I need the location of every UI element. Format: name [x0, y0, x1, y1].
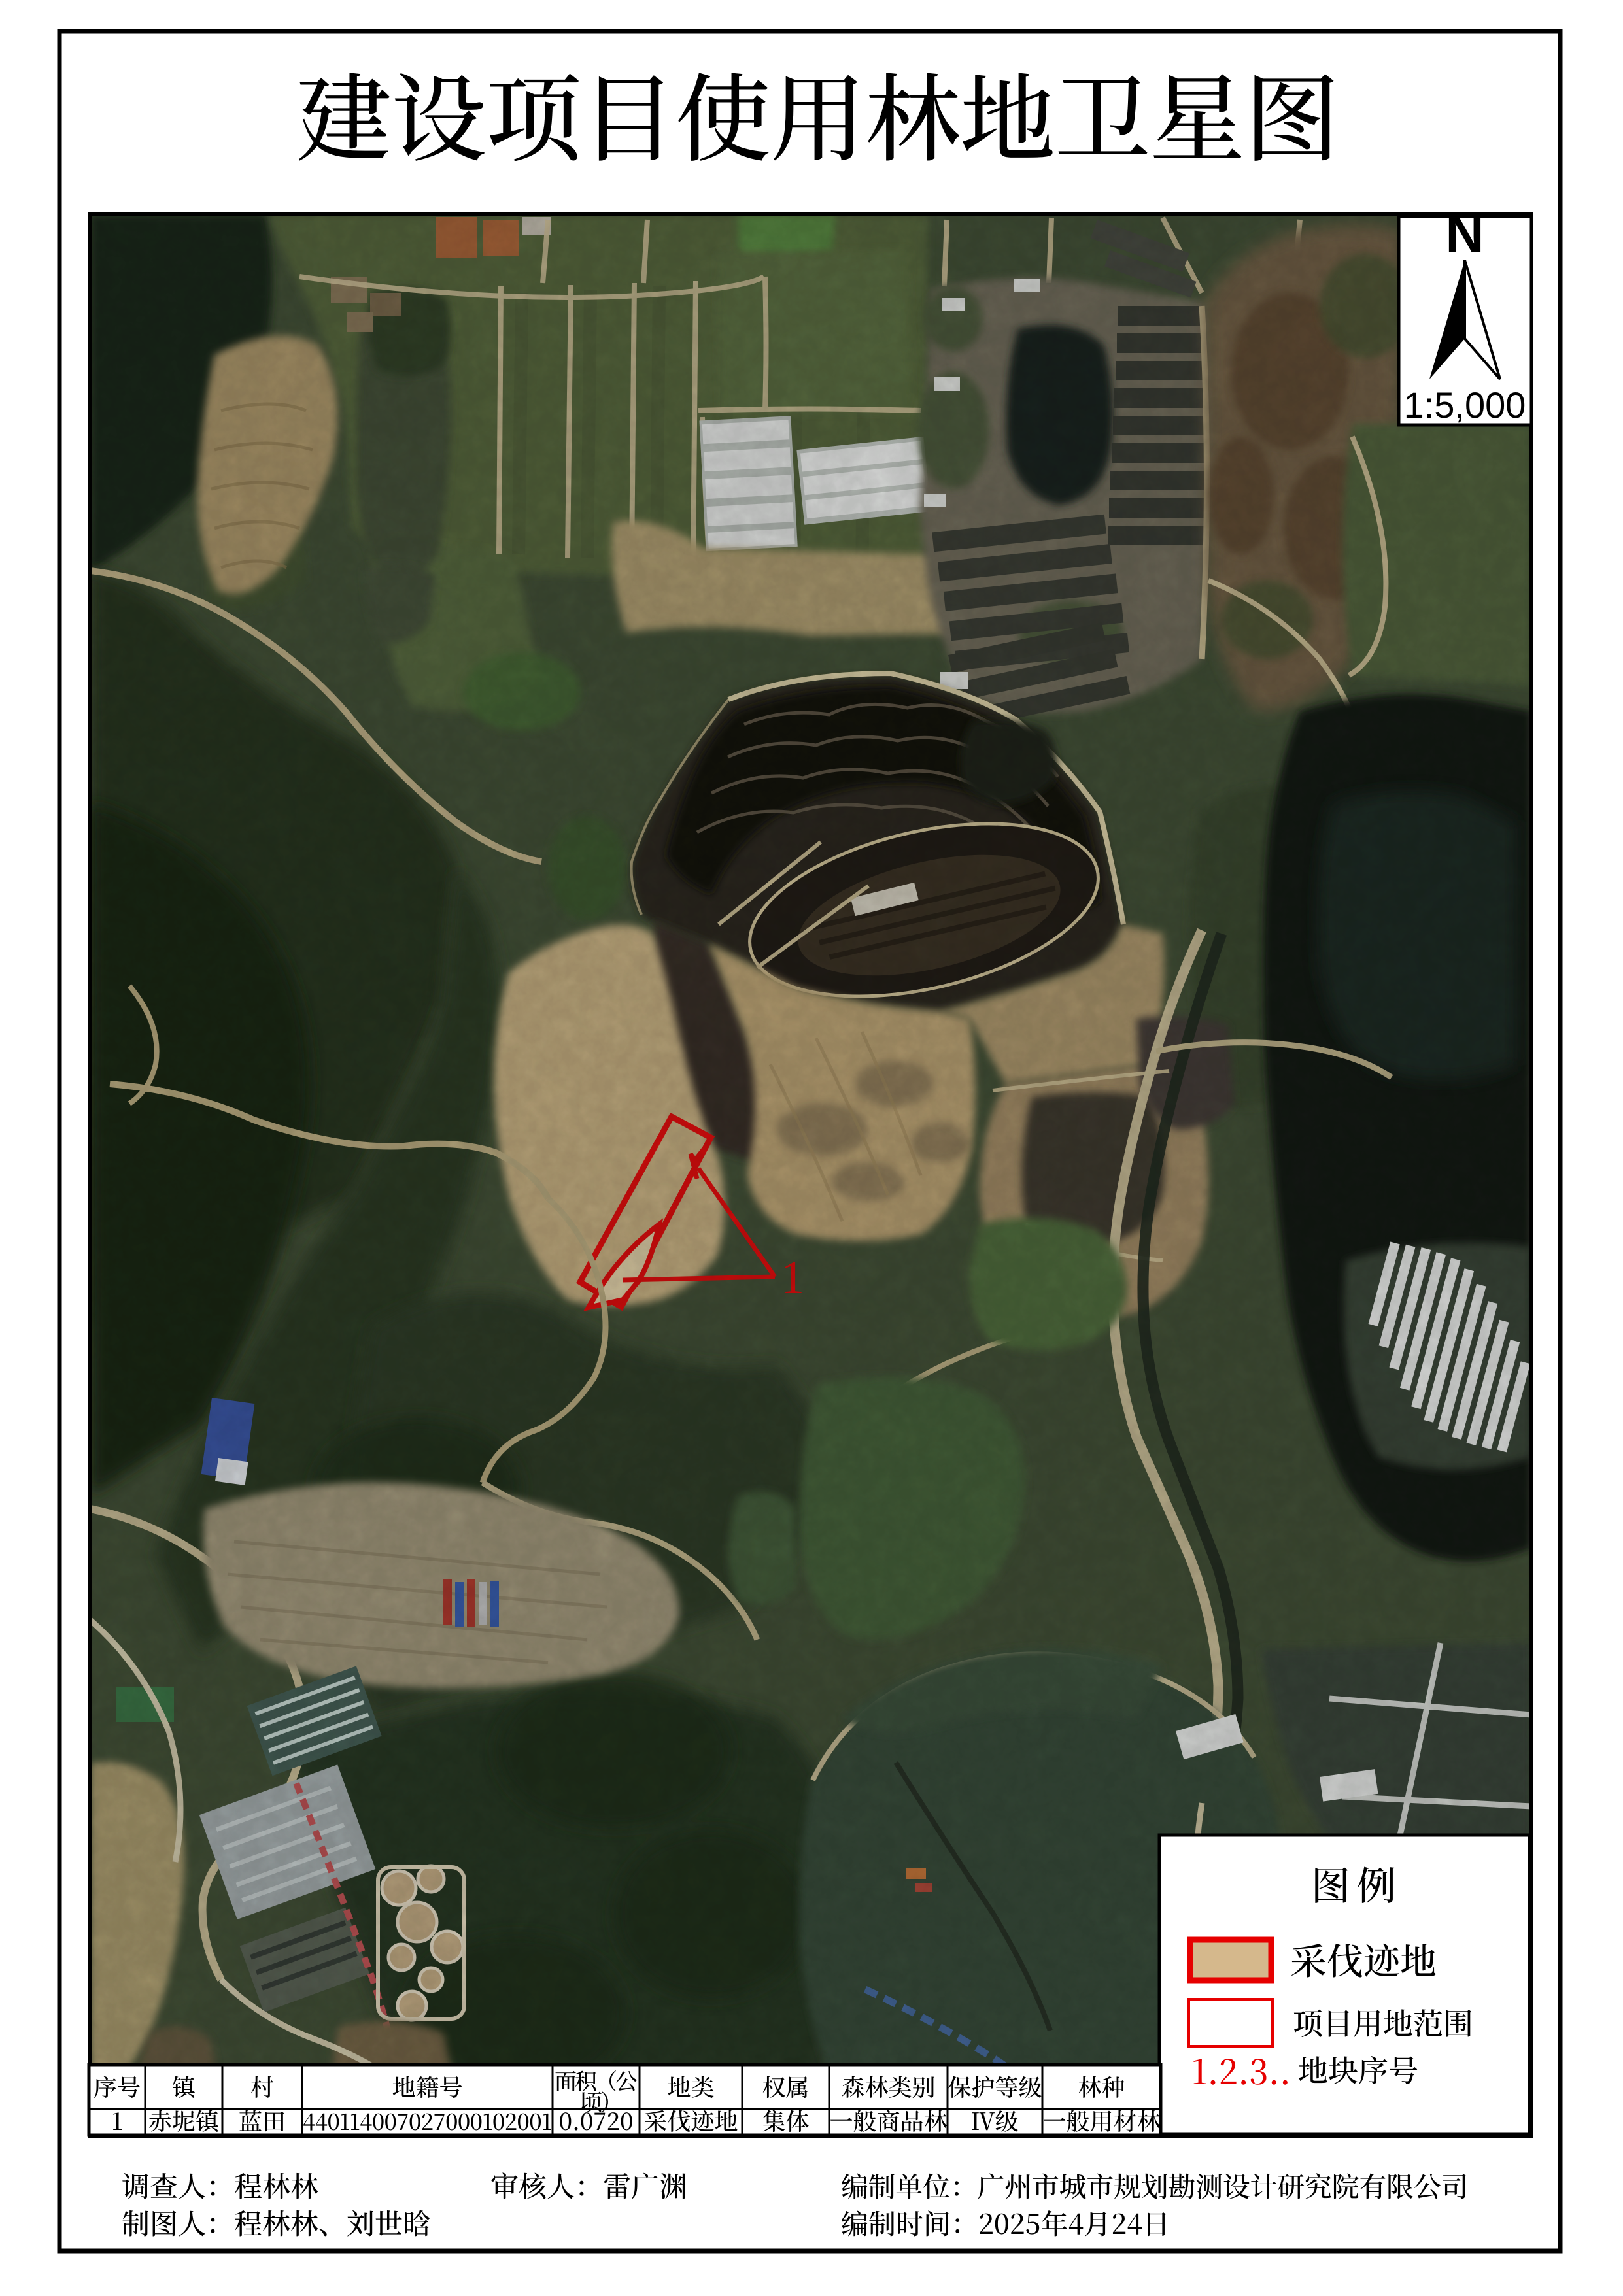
svg-text:1:5,000: 1:5,000: [1404, 384, 1526, 426]
svg-text:N: N: [1445, 204, 1484, 263]
